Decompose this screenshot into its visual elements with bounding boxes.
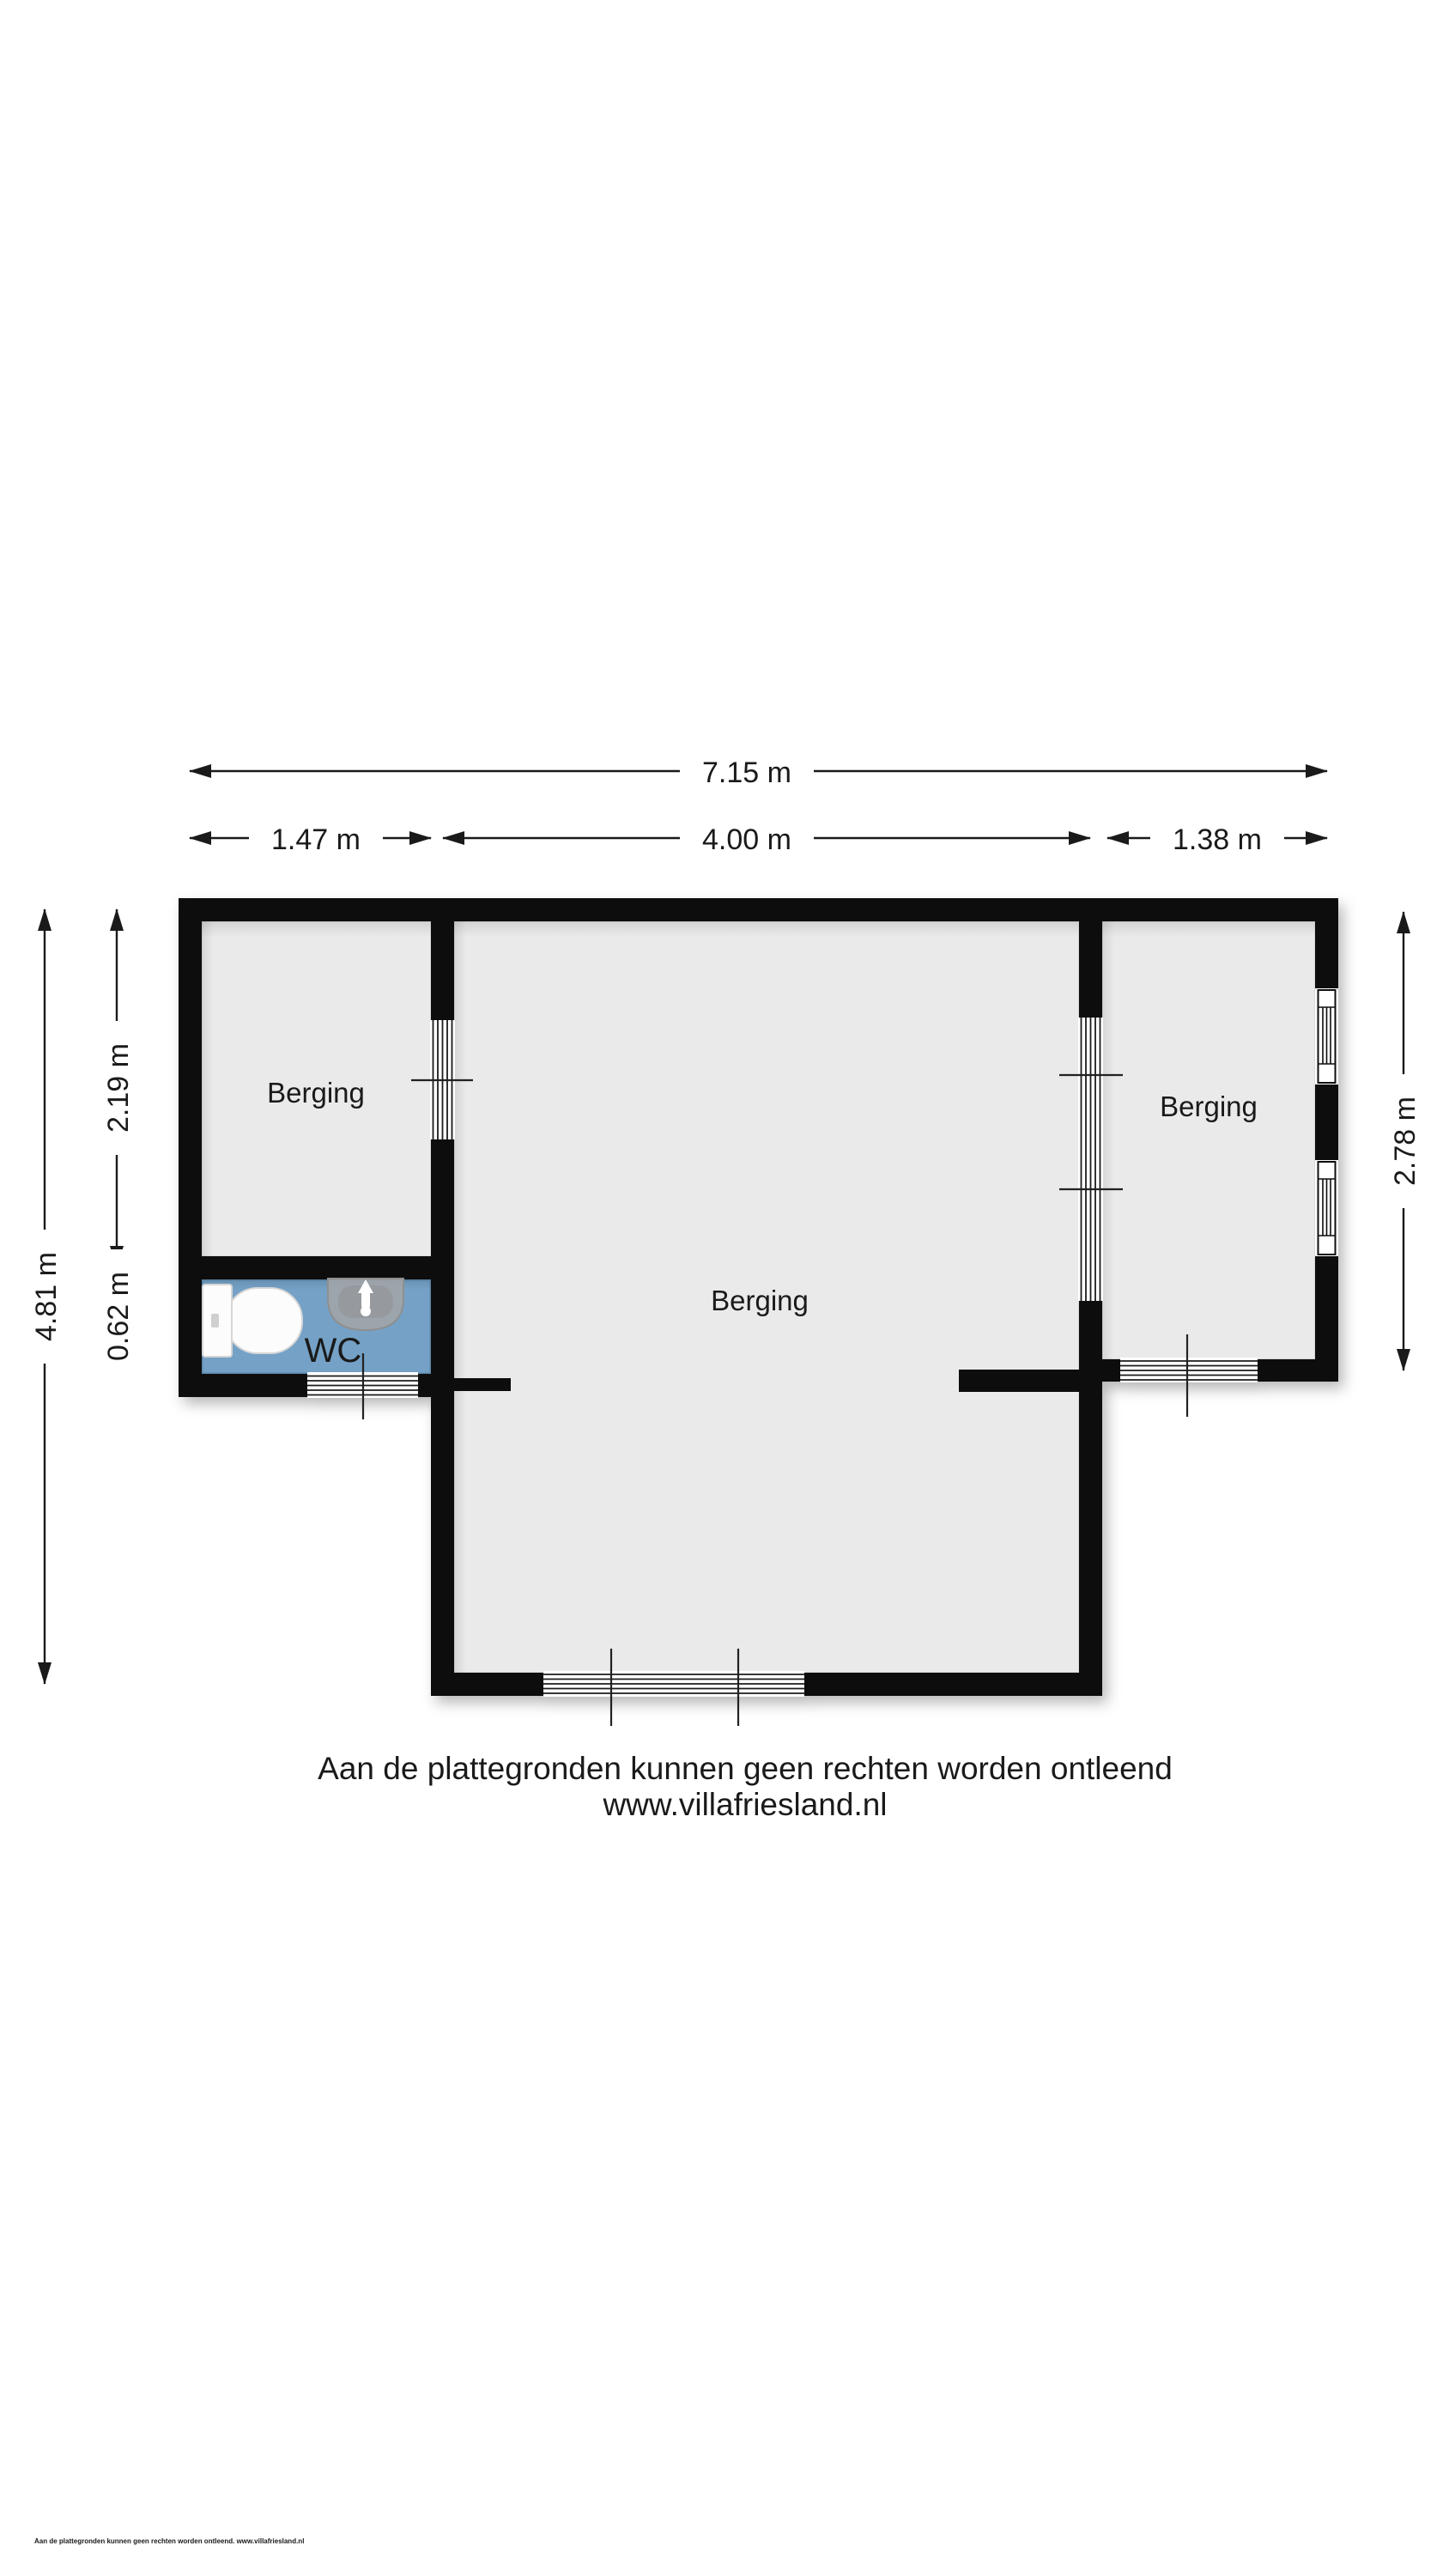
dimension-overall-height: 4.81 m [26,909,64,1684]
door-right-partition [1078,1018,1103,1301]
room-label-berging-central: Berging [711,1285,809,1316]
floor-plan: 7.15 m 1.47 m 4.00 m 1.38 m 4.81 m [0,0,1449,2576]
wall-left [179,898,202,1397]
window-right-2 [1315,1160,1338,1256]
dimension-left-width: 1.47 m [190,819,431,857]
sink-symbol [328,1279,403,1330]
floor-shadow [454,921,466,1673]
footer: Aan de plattegronden kunnen geen rechten… [34,1751,1173,2545]
dimension-wc-height: 0.62 m [98,1249,136,1383]
door-central-bottom [543,1671,804,1697]
window-right-1 [1315,988,1338,1084]
wall-right [1315,898,1338,1382]
dimension-label: 2.19 m [102,1043,135,1133]
dimension-label: 4.00 m [702,823,791,856]
dimension-total-width: 7.15 m [190,752,1327,790]
dimension-berging-right-height: 2.78 m [1385,912,1422,1370]
dimension-berging-left-height: 2.19 m [98,909,136,1267]
floor-shadow [202,921,431,937]
fine-print: Aan de plattegronden kunnen geen rechten… [34,2537,304,2545]
faucet-base [361,1306,371,1316]
dimension-label: 7.15 m [702,756,791,789]
dimension-label: 2.78 m [1389,1097,1422,1186]
page: 7.15 m 1.47 m 4.00 m 1.38 m 4.81 m [0,0,1449,2576]
berging-right-floor [1102,921,1315,1359]
wall-stub-left [454,1378,511,1391]
dimension-label: 4.81 m [30,1252,63,1341]
floor-shadow [454,921,1079,937]
toilet-symbol [203,1285,302,1357]
wall-top [179,898,1338,921]
room-label-berging-right: Berging [1160,1091,1258,1122]
footer-website: www.villafriesland.nl [602,1787,887,1822]
toilet-flush-button [211,1314,219,1327]
dimension-label: 1.38 m [1173,823,1262,856]
floor-shadow [1102,921,1114,1359]
room-label-berging-left: Berging [267,1077,365,1109]
toilet-bowl [226,1288,302,1353]
door-right-bottom [1120,1358,1258,1382]
dimension-label: 1.47 m [271,823,361,856]
floor-shadow [202,921,214,1256]
floor-shadow [1102,921,1315,937]
dimension-center-width: 4.00 m [443,819,1090,857]
wall-berging-wc [202,1256,431,1279]
wall-stub-right [959,1370,1079,1392]
dimension-right-width: 1.38 m [1107,819,1327,857]
room-label-wc: WC [305,1332,362,1370]
dimension-label: 0.62 m [102,1272,135,1361]
footer-disclaimer: Aan de plattegronden kunnen geen rechten… [318,1751,1173,1786]
